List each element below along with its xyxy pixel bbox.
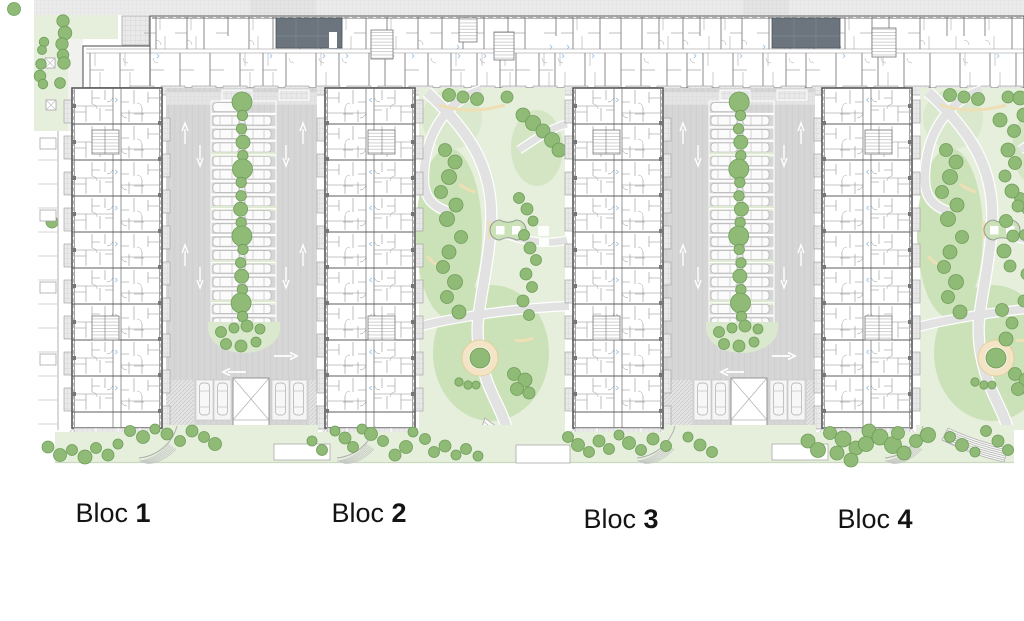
svg-text:Bloc 4: Bloc 4 (837, 504, 912, 534)
svg-text:Bloc 1: Bloc 1 (75, 498, 150, 528)
svg-text:Bloc 3: Bloc 3 (583, 504, 658, 534)
svg-text:Bloc 2: Bloc 2 (331, 498, 406, 528)
